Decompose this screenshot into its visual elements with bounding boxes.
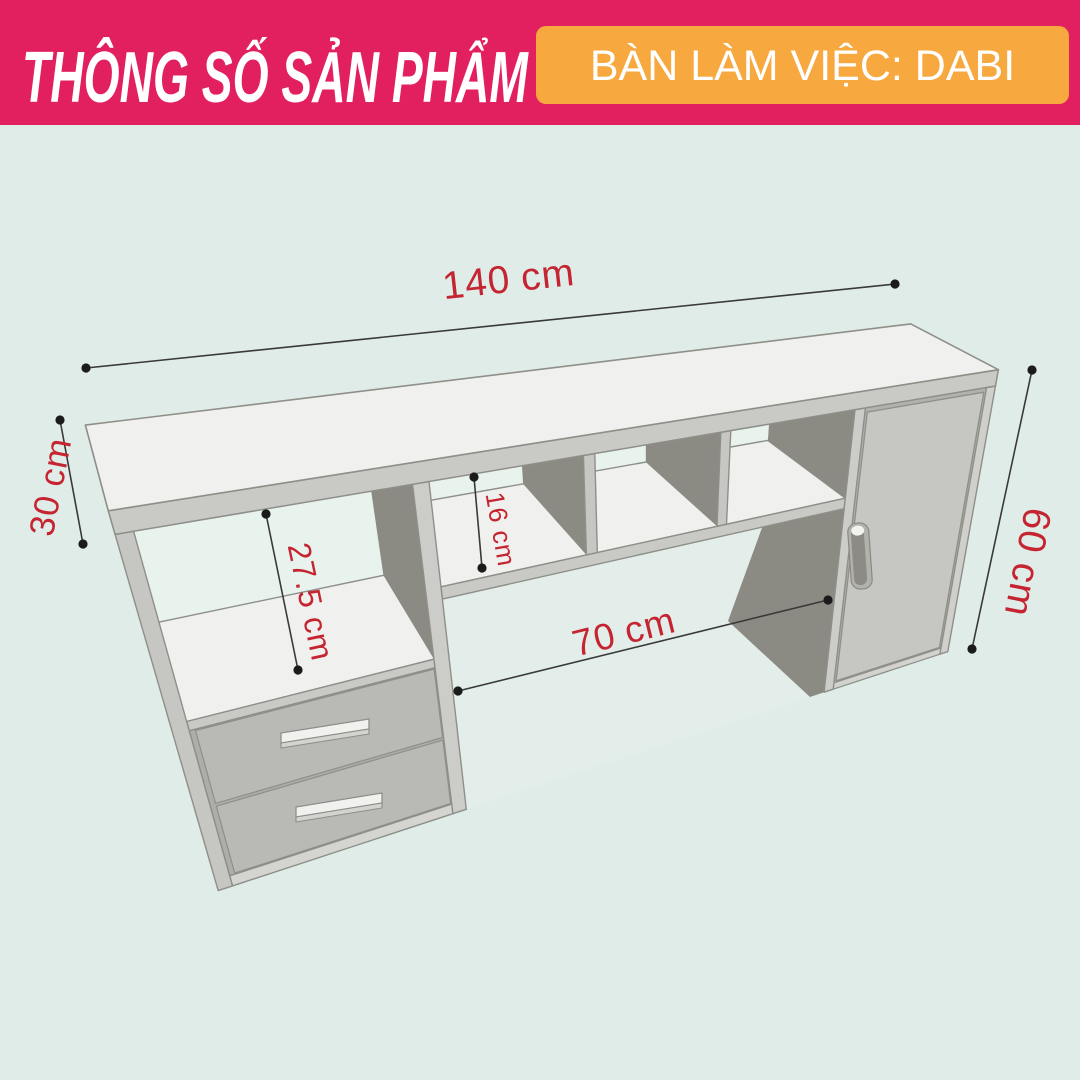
svg-text:30 cm: 30 cm — [22, 434, 79, 539]
svg-text:140 cm: 140 cm — [440, 251, 577, 308]
svg-text:60 cm: 60 cm — [996, 504, 1059, 620]
